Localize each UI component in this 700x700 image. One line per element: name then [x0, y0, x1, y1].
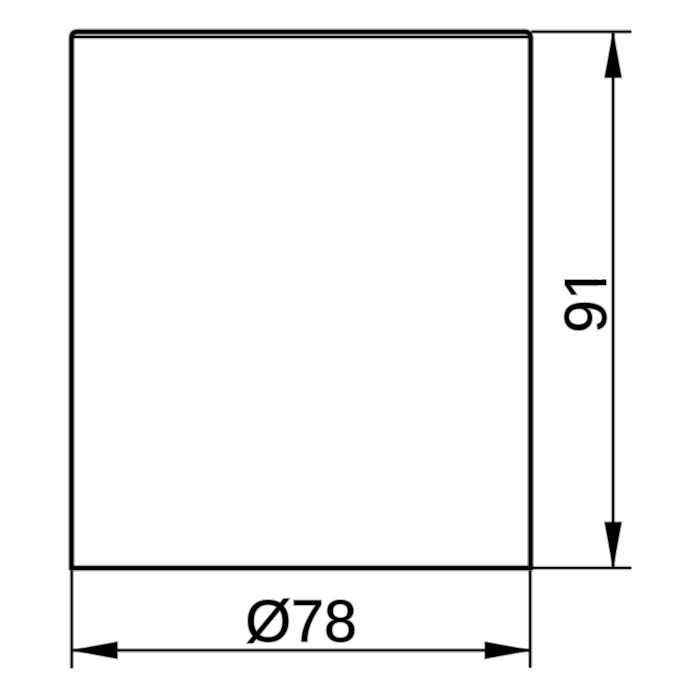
svg-text:91: 91: [553, 267, 619, 333]
svg-text:Ø78: Ø78: [245, 588, 357, 654]
